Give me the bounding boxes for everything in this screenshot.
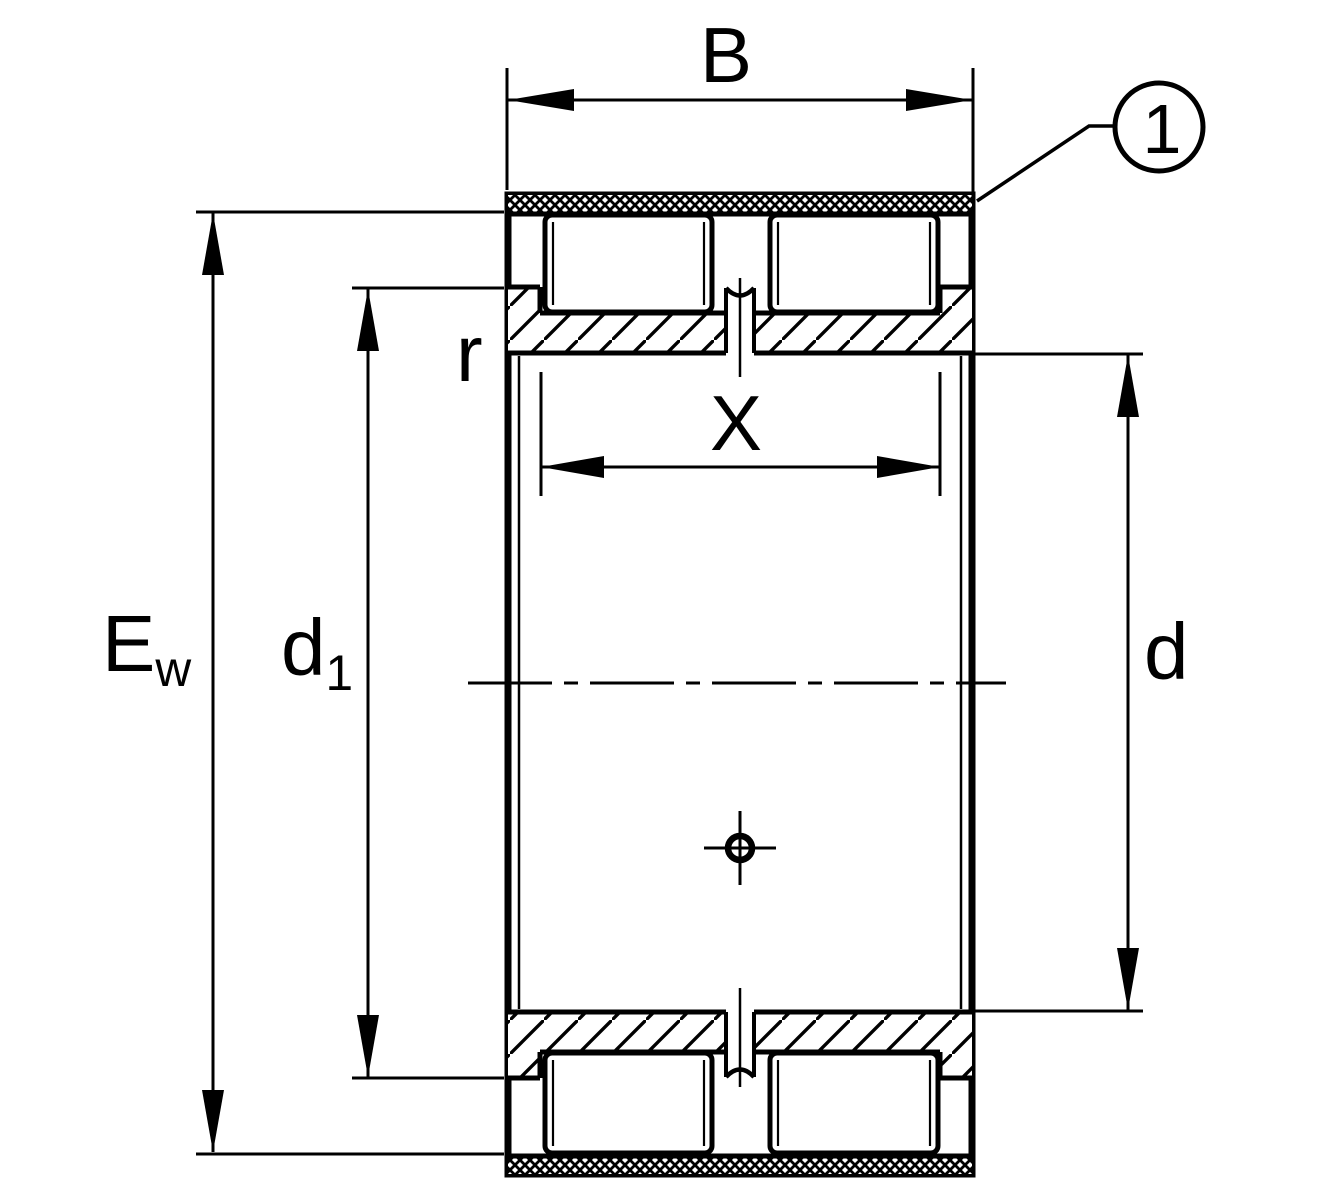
arrowhead	[357, 1015, 379, 1077]
chamfer-label-r: r	[456, 314, 483, 394]
callout-1-leader	[977, 126, 1115, 201]
bearing-drawing-svg	[0, 0, 1330, 1200]
dim-label-Ew-main: E	[102, 599, 155, 688]
roller-bottom-right	[770, 1053, 938, 1153]
crosshatch-band-top	[505, 195, 975, 214]
arrowhead	[1117, 355, 1139, 417]
arrowhead	[202, 1090, 224, 1152]
dim-label-d1-main: d	[281, 603, 326, 692]
dim-label-Ew-sub: w	[155, 641, 191, 697]
dim-label-B: B	[700, 16, 752, 94]
dim-label-X: X	[710, 384, 762, 462]
roller-top-right	[770, 215, 938, 312]
dim-label-d: d	[1144, 612, 1189, 692]
dim-label-d1-sub: 1	[326, 645, 354, 701]
crosshatch-band-bottom	[505, 1156, 975, 1174]
dim-label-d1: d1	[281, 608, 353, 698]
arrowhead	[357, 289, 379, 351]
arrowhead	[1117, 948, 1139, 1010]
roller-top-left	[545, 215, 712, 312]
arrowhead	[202, 213, 224, 275]
drawing-canvas: B X Ew d1 d r 1	[0, 0, 1330, 1200]
arrowhead	[508, 89, 574, 111]
callout-1-digit: 1	[1143, 94, 1182, 164]
dim-label-Ew: Ew	[102, 604, 191, 694]
arrowhead	[906, 89, 972, 111]
roller-bottom-left	[545, 1053, 712, 1153]
